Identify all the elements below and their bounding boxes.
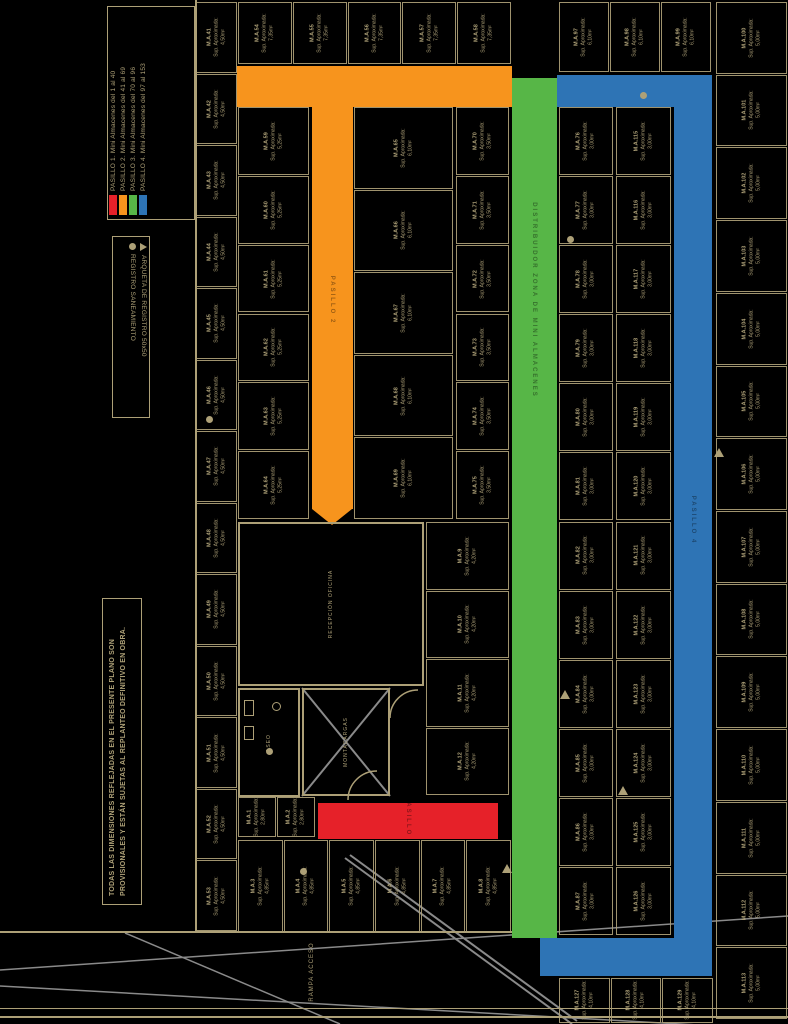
unit-cell: M.A.102Sup. Aproximada:5,00m² bbox=[716, 147, 787, 219]
unit-label: M.A.115Sup. Aproximada:3,00m² bbox=[633, 121, 653, 160]
unit-label: M.A.124Sup. Aproximada:3,00m² bbox=[633, 743, 653, 782]
unit-label: M.A.1Sup. Aproximada:2,80m² bbox=[247, 797, 267, 836]
unit-label: M.A.54Sup. Aproximada:7,35m² bbox=[255, 13, 275, 52]
unit-label: M.A.129Sup. Aproximada:4,10m² bbox=[678, 981, 698, 1020]
unit-label: M.A.105Sup. Aproximada:5,00m² bbox=[741, 382, 761, 421]
unit-label: M.A.5Sup. Aproximada:4,85m² bbox=[342, 866, 362, 905]
unit-cell: M.A.53Sup. Aproximada:4,50m² bbox=[196, 860, 237, 931]
unit-label: M.A.62Sup. Aproximada:5,25m² bbox=[263, 328, 283, 367]
corridor-pasillo-2 bbox=[237, 66, 512, 107]
unit-label: M.A.73Sup. Aproximada:3,50m² bbox=[472, 328, 492, 367]
unit-cell: M.A.68Sup. Aproximada:6,10m² bbox=[354, 355, 453, 437]
unit-cell: M.A.106Sup. Aproximada:5,00m² bbox=[716, 438, 787, 510]
unit-cell: M.A.9Sup. Aproximada:4,20m² bbox=[426, 522, 509, 590]
unit-label: M.A.117Sup. Aproximada:3,00m² bbox=[633, 259, 653, 298]
unit-cell: M.A.111Sup. Aproximada:5,00m² bbox=[716, 802, 787, 874]
corridor-pasillo-4 bbox=[540, 938, 674, 976]
bathroom-fixture bbox=[272, 702, 281, 711]
unit-label: M.A.118Sup. Aproximada:3,00m² bbox=[633, 329, 653, 368]
corridor-label-pasillo-3: DISTRIBUIDOR ZONA DE MINI ALMACENES bbox=[531, 202, 537, 398]
unit-label: M.A.128Sup. Aproximada:4,10m² bbox=[626, 981, 646, 1020]
unit-label: M.A.86Sup. Aproximada:3,00m² bbox=[576, 812, 596, 851]
unit-label: M.A.60Sup. Aproximada:5,25m² bbox=[263, 190, 283, 229]
unit-label: M.A.55Sup. Aproximada:7,35m² bbox=[310, 13, 330, 52]
unit-cell: M.A.64Sup. Aproximada:5,25m² bbox=[238, 451, 309, 519]
unit-cell: M.A.123Sup. Aproximada:3,00m² bbox=[616, 660, 671, 728]
unit-label: M.A.9Sup. Aproximada:4,20m² bbox=[457, 536, 477, 575]
room-label-recepcion: RECEPCIÓN OFICINA bbox=[328, 570, 334, 638]
unit-label: M.A.53Sup. Aproximada:4,50m² bbox=[206, 876, 226, 915]
unit-label: M.A.69Sup. Aproximada:6,10m² bbox=[393, 458, 413, 497]
register-box-icon bbox=[714, 448, 724, 457]
unit-cell: M.A.112Sup. Aproximada:5,00m² bbox=[716, 875, 787, 947]
unit-cell: M.A.127Sup. Aproximada:4,10m² bbox=[559, 978, 610, 1023]
unit-label: M.A.10Sup. Aproximada:4,20m² bbox=[457, 605, 477, 644]
unit-cell: M.A.51Sup. Aproximada:4,50m² bbox=[196, 717, 237, 788]
unit-cell: M.A.43Sup. Aproximada:4,50m² bbox=[196, 145, 237, 216]
unit-label: M.A.77Sup. Aproximada:3,00m² bbox=[576, 190, 596, 229]
unit-cell: M.A.69Sup. Aproximada:6,10m² bbox=[354, 437, 453, 519]
unit-label: M.A.3Sup. Aproximada:4,85m² bbox=[250, 866, 270, 905]
unit-label: M.A.46Sup. Aproximada:4,50m² bbox=[206, 375, 226, 414]
unit-label: M.A.67Sup. Aproximada:6,10m² bbox=[393, 293, 413, 332]
unit-cell: M.A.85Sup. Aproximada:3,00m² bbox=[559, 729, 613, 797]
unit-label: M.A.75Sup. Aproximada:3,50m² bbox=[472, 465, 492, 504]
unit-label: M.A.102Sup. Aproximada:5,00m² bbox=[741, 164, 761, 203]
unit-cell: M.A.121Sup. Aproximada:3,00m² bbox=[616, 522, 671, 590]
unit-cell: M.A.113Sup. Aproximada:5,00m² bbox=[716, 947, 787, 1019]
unit-cell: M.A.107Sup. Aproximada:5,00m² bbox=[716, 511, 787, 583]
unit-label: M.A.49Sup. Aproximada:4,50m² bbox=[206, 590, 226, 629]
unit-label: M.A.57Sup. Aproximada:7,35m² bbox=[419, 13, 439, 52]
corridor-label-pasillo-2: PASILLO 2 bbox=[329, 276, 335, 325]
unit-cell: M.A.50Sup. Aproximada:4,50m² bbox=[196, 646, 237, 717]
legend-pasillo-label: PASILLO 4. Mini Almacenes del 97 al 153 bbox=[140, 63, 147, 191]
corridor-label-pasillo-1: PASILLO 1 bbox=[405, 797, 411, 846]
unit-cell: M.A.101Sup. Aproximada:5,00m² bbox=[716, 75, 787, 147]
unit-cell: M.A.2Sup. Aproximada:2,80m² bbox=[277, 797, 315, 837]
unit-label: M.A.66Sup. Aproximada:6,10m² bbox=[393, 211, 413, 250]
unit-label: M.A.51Sup. Aproximada:4,50m² bbox=[206, 733, 226, 772]
unit-cell: M.A.80Sup. Aproximada:3,00m² bbox=[559, 383, 613, 451]
unit-cell: M.A.60Sup. Aproximada:5,25m² bbox=[238, 176, 309, 244]
unit-label: M.A.108Sup. Aproximada:5,00m² bbox=[741, 600, 761, 639]
unit-label: M.A.63Sup. Aproximada:5,25m² bbox=[263, 397, 283, 436]
unit-cell: M.A.45Sup. Aproximada:4,50m² bbox=[196, 288, 237, 359]
note-text: TODAS LAS DIMENSIONES REFLEJADAS EN EL P… bbox=[103, 599, 135, 904]
unit-cell: M.A.97Sup. Aproximada:6,10m² bbox=[559, 2, 609, 72]
unit-cell: M.A.41Sup. Aproximada:4,50m² bbox=[196, 2, 237, 73]
unit-label: M.A.111Sup. Aproximada:5,00m² bbox=[741, 818, 761, 857]
unit-label: M.A.125Sup. Aproximada:3,00m² bbox=[633, 812, 653, 851]
legend-symbol-row: ARQUETA DE REGISTRO 50x50 bbox=[138, 237, 149, 417]
sewer-register-icon bbox=[300, 868, 307, 875]
unit-label: M.A.101Sup. Aproximada:5,00m² bbox=[741, 91, 761, 130]
unit-label: M.A.58Sup. Aproximada:7,35m² bbox=[474, 13, 494, 52]
legend-symbol-row: REGISTRO SANEAMIENTO bbox=[127, 237, 138, 417]
unit-cell: M.A.99Sup. Aproximada:6,10m² bbox=[661, 2, 711, 72]
legend-pasillo-row: PASILLO 2. Mini Almacenes del 41 al 69 bbox=[118, 7, 128, 219]
unit-cell: M.A.120Sup. Aproximada:3,00m² bbox=[616, 452, 671, 520]
unit-cell: M.A.76Sup. Aproximada:3,00m² bbox=[559, 107, 613, 175]
unit-cell: M.A.55Sup. Aproximada:7,35m² bbox=[293, 2, 347, 64]
unit-label: M.A.120Sup. Aproximada:3,00m² bbox=[633, 467, 653, 506]
legend-pasillo-label: PASILLO 1. Mini Almacenes del 1 al 40 bbox=[110, 71, 117, 191]
unit-cell: M.A.61Sup. Aproximada:5,25m² bbox=[238, 245, 309, 313]
legend-pasillos: PASILLO 1. Mini Almacenes del 1 al 40PAS… bbox=[107, 6, 195, 220]
unit-label: M.A.68Sup. Aproximada:6,10m² bbox=[393, 376, 413, 415]
room-label-montacargas: MONTACARGAS bbox=[343, 717, 349, 767]
unit-cell: M.A.126Sup. Aproximada:3,00m² bbox=[616, 867, 671, 935]
register-box-icon bbox=[618, 786, 628, 795]
unit-cell: M.A.70Sup. Aproximada:3,50m² bbox=[456, 107, 509, 175]
unit-cell: M.A.49Sup. Aproximada:4,50m² bbox=[196, 574, 237, 645]
unit-label: M.A.106Sup. Aproximada:5,00m² bbox=[741, 454, 761, 493]
sewer-register-icon bbox=[206, 416, 213, 423]
sewer-register-icon bbox=[266, 748, 273, 755]
color-swatch bbox=[109, 195, 117, 215]
unit-cell: M.A.47Sup. Aproximada:4,50m² bbox=[196, 431, 237, 502]
legend-pasillo-label: PASILLO 3. Mini Almacenes del 70 al 96 bbox=[130, 67, 137, 191]
unit-cell: M.A.71Sup. Aproximada:3,50m² bbox=[456, 176, 509, 244]
unit-label: M.A.11Sup. Aproximada:4,20m² bbox=[457, 673, 477, 712]
unit-label: M.A.50Sup. Aproximada:4,50m² bbox=[206, 661, 226, 700]
unit-cell: M.A.104Sup. Aproximada:5,00m² bbox=[716, 293, 787, 365]
legend-symbol-label: ARQUETA DE REGISTRO 50x50 bbox=[140, 255, 147, 357]
unit-label: M.A.7Sup. Aproximada:4,85m² bbox=[433, 866, 453, 905]
unit-cell: M.A.4Sup. Aproximada:4,85m² bbox=[284, 840, 329, 932]
unit-cell: M.A.6Sup. Aproximada:4,85m² bbox=[375, 840, 420, 932]
unit-cell: M.A.3Sup. Aproximada:4,85m² bbox=[238, 840, 283, 932]
unit-label: M.A.41Sup. Aproximada:4,50m² bbox=[206, 18, 226, 57]
unit-label: M.A.8Sup. Aproximada:4,85m² bbox=[479, 866, 499, 905]
bathroom-fixture bbox=[244, 726, 254, 740]
unit-cell: M.A.116Sup. Aproximada:3,00m² bbox=[616, 176, 671, 244]
ramp-access-label: RAMPA ACCESO bbox=[309, 942, 315, 1001]
unit-label: M.A.121Sup. Aproximada:3,00m² bbox=[633, 536, 653, 575]
unit-cell: M.A.66Sup. Aproximada:6,10m² bbox=[354, 190, 453, 272]
corridor-label-pasillo-4: PASILLO 4 bbox=[690, 496, 696, 545]
unit-cell: M.A.125Sup. Aproximada:3,00m² bbox=[616, 798, 671, 866]
unit-cell: M.A.54Sup. Aproximada:7,35m² bbox=[238, 2, 292, 64]
unit-cell: M.A.10Sup. Aproximada:4,20m² bbox=[426, 591, 509, 659]
unit-cell: M.A.12Sup. Aproximada:4,20m² bbox=[426, 728, 509, 796]
unit-label: M.A.85Sup. Aproximada:3,00m² bbox=[576, 743, 596, 782]
unit-cell: M.A.67Sup. Aproximada:6,10m² bbox=[354, 272, 453, 354]
unit-label: M.A.79Sup. Aproximada:3,00m² bbox=[576, 329, 596, 368]
triangle-icon bbox=[140, 243, 147, 251]
register-box-icon bbox=[560, 690, 570, 699]
unit-label: M.A.6Sup. Aproximada:4,85m² bbox=[387, 866, 407, 905]
unit-label: M.A.47Sup. Aproximada:4,50m² bbox=[206, 447, 226, 486]
legend-pasillos-rows: PASILLO 1. Mini Almacenes del 1 al 40PAS… bbox=[108, 7, 194, 219]
unit-label: M.A.59Sup. Aproximada:5,25m² bbox=[263, 121, 283, 160]
unit-label: M.A.81Sup. Aproximada:3,00m² bbox=[576, 467, 596, 506]
unit-label: M.A.127Sup. Aproximada:4,10m² bbox=[574, 981, 594, 1020]
unit-label: M.A.112Sup. Aproximada:5,00m² bbox=[741, 891, 761, 930]
unit-label: M.A.123Sup. Aproximada:3,00m² bbox=[633, 674, 653, 713]
unit-cell: M.A.81Sup. Aproximada:3,00m² bbox=[559, 452, 613, 520]
unit-cell: M.A.87Sup. Aproximada:3,00m² bbox=[559, 867, 613, 935]
unit-cell: M.A.82Sup. Aproximada:3,00m² bbox=[559, 522, 613, 590]
unit-label: M.A.100Sup. Aproximada:5,00m² bbox=[741, 18, 761, 57]
unit-label: M.A.119Sup. Aproximada:3,00m² bbox=[633, 398, 653, 437]
unit-label: M.A.97Sup. Aproximada:6,10m² bbox=[574, 17, 594, 56]
unit-label: M.A.98Sup. Aproximada:6,10m² bbox=[625, 17, 645, 56]
unit-label: M.A.74Sup. Aproximada:3,50m² bbox=[472, 397, 492, 436]
unit-cell: M.A.7Sup. Aproximada:4,85m² bbox=[421, 840, 466, 932]
unit-cell: M.A.128Sup. Aproximada:4,10m² bbox=[611, 978, 662, 1023]
unit-cell: M.A.63Sup. Aproximada:5,25m² bbox=[238, 382, 309, 450]
legend-symbols-rows: ARQUETA DE REGISTRO 50x50REGISTRO SANEAM… bbox=[113, 237, 149, 417]
unit-label: M.A.52Sup. Aproximada:4,50m² bbox=[206, 804, 226, 843]
unit-cell: M.A.86Sup. Aproximada:3,00m² bbox=[559, 798, 613, 866]
unit-cell: M.A.105Sup. Aproximada:5,00m² bbox=[716, 366, 787, 438]
unit-label: M.A.83Sup. Aproximada:3,00m² bbox=[576, 605, 596, 644]
unit-label: M.A.82Sup. Aproximada:3,00m² bbox=[576, 536, 596, 575]
unit-label: M.A.61Sup. Aproximada:5,25m² bbox=[263, 259, 283, 298]
unit-cell: M.A.44Sup. Aproximada:4,50m² bbox=[196, 217, 237, 288]
unit-label: M.A.107Sup. Aproximada:5,00m² bbox=[741, 527, 761, 566]
unit-label: M.A.103Sup. Aproximada:5,00m² bbox=[741, 236, 761, 275]
unit-cell: M.A.62Sup. Aproximada:5,25m² bbox=[238, 314, 309, 382]
note-box: TODAS LAS DIMENSIONES REFLEJADAS EN EL P… bbox=[102, 598, 142, 905]
unit-cell: M.A.57Sup. Aproximada:7,35m² bbox=[402, 2, 456, 64]
unit-cell: M.A.48Sup. Aproximada:4,50m² bbox=[196, 503, 237, 574]
unit-label: M.A.76Sup. Aproximada:3,00m² bbox=[576, 121, 596, 160]
unit-cell: M.A.129Sup. Aproximada:4,10m² bbox=[662, 978, 713, 1023]
unit-label: M.A.43Sup. Aproximada:4,50m² bbox=[206, 161, 226, 200]
unit-cell: M.A.1Sup. Aproximada:2,80m² bbox=[238, 797, 276, 837]
legend-pasillo-row: PASILLO 4. Mini Almacenes del 97 al 153 bbox=[138, 7, 148, 219]
unit-cell: M.A.56Sup. Aproximada:7,35m² bbox=[348, 2, 402, 64]
color-swatch bbox=[139, 195, 147, 215]
register-box-icon bbox=[502, 864, 512, 873]
unit-cell: M.A.42Sup. Aproximada:4,50m² bbox=[196, 74, 237, 145]
floor-plan-page: PASILLO 1. Mini Almacenes del 1 al 40PAS… bbox=[0, 0, 788, 1024]
unit-cell: M.A.108Sup. Aproximada:5,00m² bbox=[716, 584, 787, 656]
unit-cell: M.A.109Sup. Aproximada:5,00m² bbox=[716, 656, 787, 728]
unit-label: M.A.12Sup. Aproximada:4,20m² bbox=[457, 742, 477, 781]
unit-cell: M.A.46Sup. Aproximada:4,50m² bbox=[196, 360, 237, 431]
unit-cell: M.A.74Sup. Aproximada:3,50m² bbox=[456, 382, 509, 450]
unit-label: M.A.72Sup. Aproximada:3,50m² bbox=[472, 259, 492, 298]
unit-label: M.A.64Sup. Aproximada:5,25m² bbox=[263, 465, 283, 504]
unit-cell: M.A.119Sup. Aproximada:3,00m² bbox=[616, 383, 671, 451]
unit-label: M.A.48Sup. Aproximada:4,50m² bbox=[206, 518, 226, 557]
unit-cell: M.A.79Sup. Aproximada:3,00m² bbox=[559, 314, 613, 382]
unit-label: M.A.2Sup. Aproximada:2,80m² bbox=[286, 797, 306, 836]
unit-cell: M.A.72Sup. Aproximada:3,50m² bbox=[456, 245, 509, 313]
unit-label: M.A.87Sup. Aproximada:3,00m² bbox=[576, 881, 596, 920]
unit-cell: M.A.5Sup. Aproximada:4,85m² bbox=[329, 840, 374, 932]
bathroom-fixture bbox=[244, 700, 254, 716]
unit-label: M.A.104Sup. Aproximada:5,00m² bbox=[741, 309, 761, 348]
unit-cell: M.A.52Sup. Aproximada:4,50m² bbox=[196, 789, 237, 860]
unit-label: M.A.45Sup. Aproximada:4,50m² bbox=[206, 304, 226, 343]
unit-cell: M.A.73Sup. Aproximada:3,50m² bbox=[456, 314, 509, 382]
unit-cell: M.A.83Sup. Aproximada:3,00m² bbox=[559, 591, 613, 659]
unit-cell: M.A.122Sup. Aproximada:3,00m² bbox=[616, 591, 671, 659]
unit-label: M.A.71Sup. Aproximada:3,50m² bbox=[472, 190, 492, 229]
legend-pasillo-row: PASILLO 3. Mini Almacenes del 70 al 96 bbox=[128, 7, 138, 219]
unit-cell: M.A.59Sup. Aproximada:5,25m² bbox=[238, 107, 309, 175]
sewer-register-icon bbox=[640, 92, 647, 99]
unit-cell: M.A.115Sup. Aproximada:3,00m² bbox=[616, 107, 671, 175]
unit-label: M.A.65Sup. Aproximada:6,10m² bbox=[393, 128, 413, 167]
legend-symbols: ARQUETA DE REGISTRO 50x50REGISTRO SANEAM… bbox=[112, 236, 150, 418]
unit-label: M.A.84Sup. Aproximada:3,00m² bbox=[576, 674, 596, 713]
circle-icon bbox=[129, 243, 136, 250]
unit-label: M.A.44Sup. Aproximada:4,50m² bbox=[206, 232, 226, 271]
unit-label: M.A.99Sup. Aproximada:6,10m² bbox=[676, 17, 696, 56]
unit-cell: M.A.75Sup. Aproximada:3,50m² bbox=[456, 451, 509, 519]
unit-cell: M.A.118Sup. Aproximada:3,00m² bbox=[616, 314, 671, 382]
unit-cell: M.A.100Sup. Aproximada:5,00m² bbox=[716, 2, 787, 74]
unit-cell: M.A.117Sup. Aproximada:3,00m² bbox=[616, 245, 671, 313]
unit-cell: M.A.58Sup. Aproximada:7,35m² bbox=[457, 2, 511, 64]
color-swatch bbox=[119, 195, 127, 215]
unit-label: M.A.80Sup. Aproximada:3,00m² bbox=[576, 398, 596, 437]
color-swatch bbox=[129, 195, 137, 215]
sewer-register-icon bbox=[567, 236, 574, 243]
legend-pasillo-label: PASILLO 2. Mini Almacenes del 41 al 69 bbox=[120, 67, 127, 191]
unit-label: M.A.78Sup. Aproximada:3,00m² bbox=[576, 259, 596, 298]
unit-label: M.A.56Sup. Aproximada:7,35m² bbox=[364, 13, 384, 52]
unit-label: M.A.126Sup. Aproximada:3,00m² bbox=[633, 881, 653, 920]
unit-label: M.A.116Sup. Aproximada:3,00m² bbox=[633, 190, 653, 229]
unit-cell: M.A.77Sup. Aproximada:3,00m² bbox=[559, 176, 613, 244]
unit-label: M.A.122Sup. Aproximada:3,00m² bbox=[633, 605, 653, 644]
unit-cell: M.A.78Sup. Aproximada:3,00m² bbox=[559, 245, 613, 313]
unit-label: M.A.110Sup. Aproximada:5,00m² bbox=[741, 745, 761, 784]
unit-label: M.A.42Sup. Aproximada:4,50m² bbox=[206, 89, 226, 128]
unit-cell: M.A.65Sup. Aproximada:6,10m² bbox=[354, 107, 453, 189]
unit-cell: M.A.98Sup. Aproximada:6,10m² bbox=[610, 2, 660, 72]
unit-cell: M.A.103Sup. Aproximada:5,00m² bbox=[716, 220, 787, 292]
unit-cell: M.A.110Sup. Aproximada:5,00m² bbox=[716, 729, 787, 801]
legend-symbol-label: REGISTRO SANEAMIENTO bbox=[129, 254, 136, 341]
legend-pasillo-row: PASILLO 1. Mini Almacenes del 1 al 40 bbox=[108, 7, 118, 219]
unit-label: M.A.109Sup. Aproximada:5,00m² bbox=[741, 673, 761, 712]
unit-label: M.A.70Sup. Aproximada:3,50m² bbox=[472, 121, 492, 160]
unit-label: M.A.113Sup. Aproximada:5,00m² bbox=[741, 963, 761, 1002]
unit-cell: M.A.8Sup. Aproximada:4,85m² bbox=[466, 840, 511, 932]
unit-cell: M.A.11Sup. Aproximada:4,20m² bbox=[426, 659, 509, 727]
